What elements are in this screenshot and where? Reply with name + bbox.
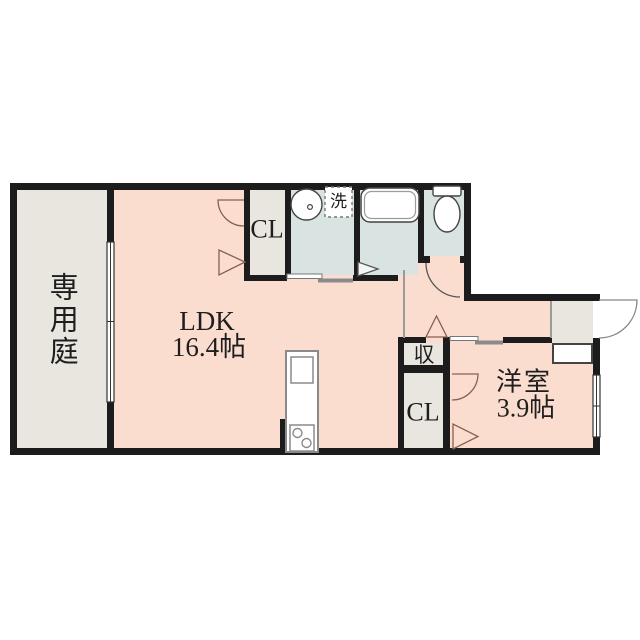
ldk-size-label: 16.4帖 xyxy=(172,333,246,361)
wall-column-left xyxy=(398,337,404,455)
closet-top-label: CL xyxy=(250,215,283,242)
room-bathroom xyxy=(360,190,418,275)
wall-outer-right-upper xyxy=(464,183,471,301)
western-room-size-label: 3.9帖 xyxy=(497,394,556,421)
wall-garden-ldk-b xyxy=(107,402,114,448)
laundry-label: 洗 xyxy=(330,193,347,211)
wall-garden-ldk-a xyxy=(107,190,114,242)
wall-hall-bottom-c xyxy=(503,337,552,343)
wall-wing-top xyxy=(464,294,600,301)
shoe-cabinet xyxy=(552,343,593,364)
wall-wetband-bottom-a xyxy=(244,275,287,281)
garden-label: 専用庭 xyxy=(46,272,76,368)
room-toilet xyxy=(424,190,464,256)
storage-label: 収 xyxy=(414,344,435,366)
wall-outer-bottom xyxy=(10,448,600,455)
opening-ldk-hallway xyxy=(403,270,405,338)
wall-column-right xyxy=(443,337,450,455)
genkan-step-line xyxy=(550,301,552,338)
wall-wetband-bottom-b xyxy=(353,275,398,281)
western-room-label: 洋室 xyxy=(496,368,552,395)
wall-closet-washroom xyxy=(285,190,291,275)
closet-bottom-label: CL xyxy=(406,398,439,425)
outside-top-right xyxy=(471,183,601,294)
door-swing-entrance-icon xyxy=(599,300,637,338)
floorplan-canvas: 専用庭 LDK 16.4帖 CL 洗 収 CL 洋室 3.9帖 xyxy=(0,0,640,640)
wall-kitchen-stub xyxy=(280,419,287,455)
wall-outer-top xyxy=(10,183,471,190)
wall-toilet-bottom-a xyxy=(418,256,430,263)
room-genkan xyxy=(552,301,593,343)
wall-outer-right-a xyxy=(593,294,600,301)
window-western-east-icon xyxy=(593,375,600,437)
wall-closet-top-left xyxy=(244,190,250,275)
wall-washroom-bath xyxy=(354,190,360,275)
wall-toilet-bottom-b xyxy=(460,256,471,263)
wall-outer-left xyxy=(10,183,17,455)
wall-outer-right-b xyxy=(593,338,600,375)
wall-bath-toilet xyxy=(418,190,424,263)
